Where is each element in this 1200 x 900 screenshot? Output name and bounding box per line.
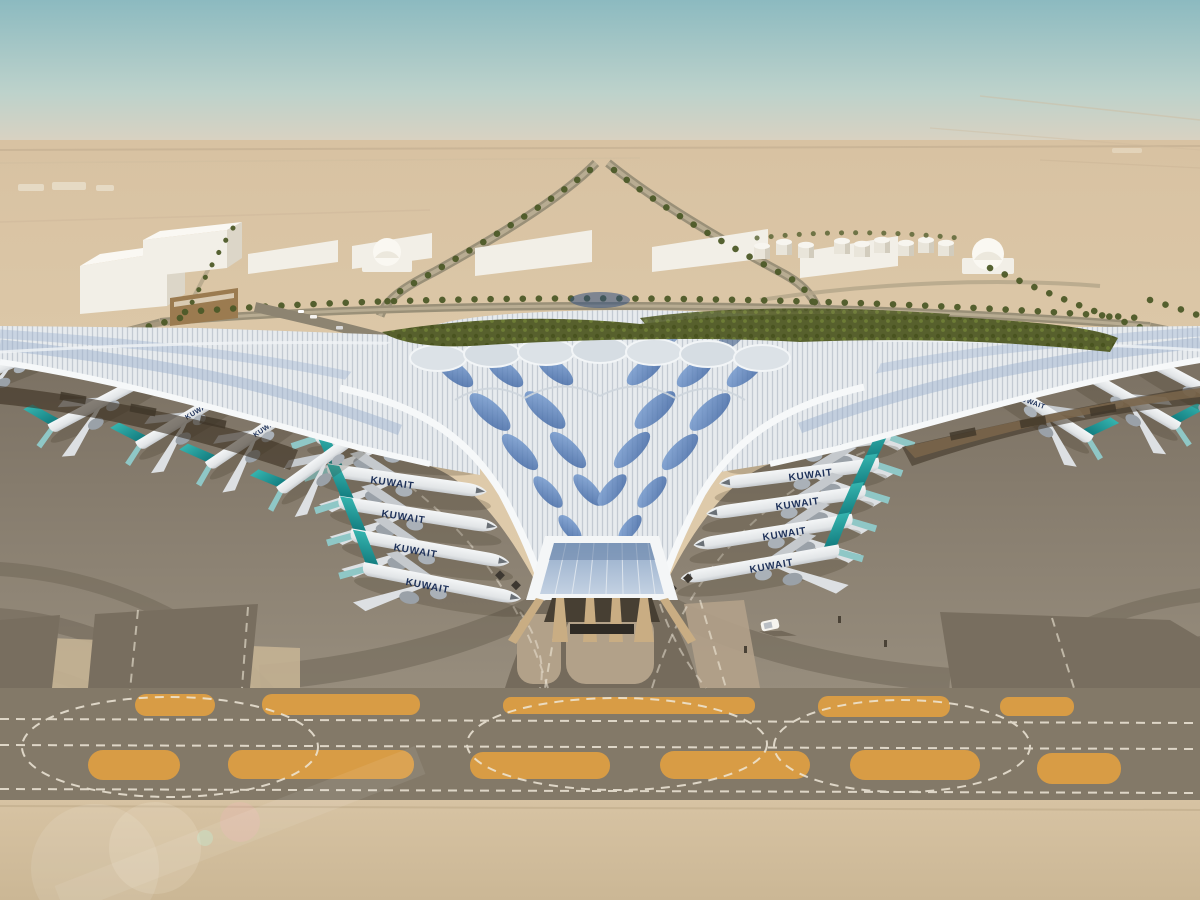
fuel-tank bbox=[776, 239, 792, 255]
amber-pad bbox=[470, 752, 610, 779]
amber-pad bbox=[503, 697, 755, 714]
scene-canvas: KUWAIT KUWAIT KUWAIT KUWAIT KUWAIT KUWAI… bbox=[0, 0, 1200, 900]
entrance-glass-band bbox=[570, 624, 634, 634]
fuel-tank bbox=[918, 237, 934, 253]
gable-glass-shade bbox=[549, 543, 655, 560]
taxiway-connector bbox=[88, 604, 258, 688]
fuel-tank bbox=[938, 240, 954, 256]
taxiway-connector bbox=[0, 615, 60, 688]
amber-pad bbox=[262, 694, 420, 715]
car bbox=[310, 315, 317, 319]
amber-pad bbox=[1037, 753, 1121, 784]
fuel-tank bbox=[898, 240, 914, 256]
fuel-tank bbox=[754, 243, 770, 259]
sky bbox=[0, 0, 1200, 150]
car bbox=[298, 310, 304, 313]
amber-pad bbox=[850, 750, 980, 780]
fuel-tank bbox=[834, 238, 850, 254]
amber-pad bbox=[1000, 697, 1074, 716]
airport-aerial-rendering: KUWAIT KUWAIT KUWAIT KUWAIT KUWAIT KUWAI… bbox=[0, 0, 1200, 900]
fuel-tank bbox=[854, 241, 870, 257]
amber-pad bbox=[88, 750, 180, 780]
car bbox=[336, 326, 343, 330]
fuel-tank bbox=[874, 237, 890, 253]
taxiway-connector bbox=[940, 612, 1200, 688]
fuel-tank bbox=[798, 242, 814, 258]
amber-pad bbox=[660, 751, 810, 779]
